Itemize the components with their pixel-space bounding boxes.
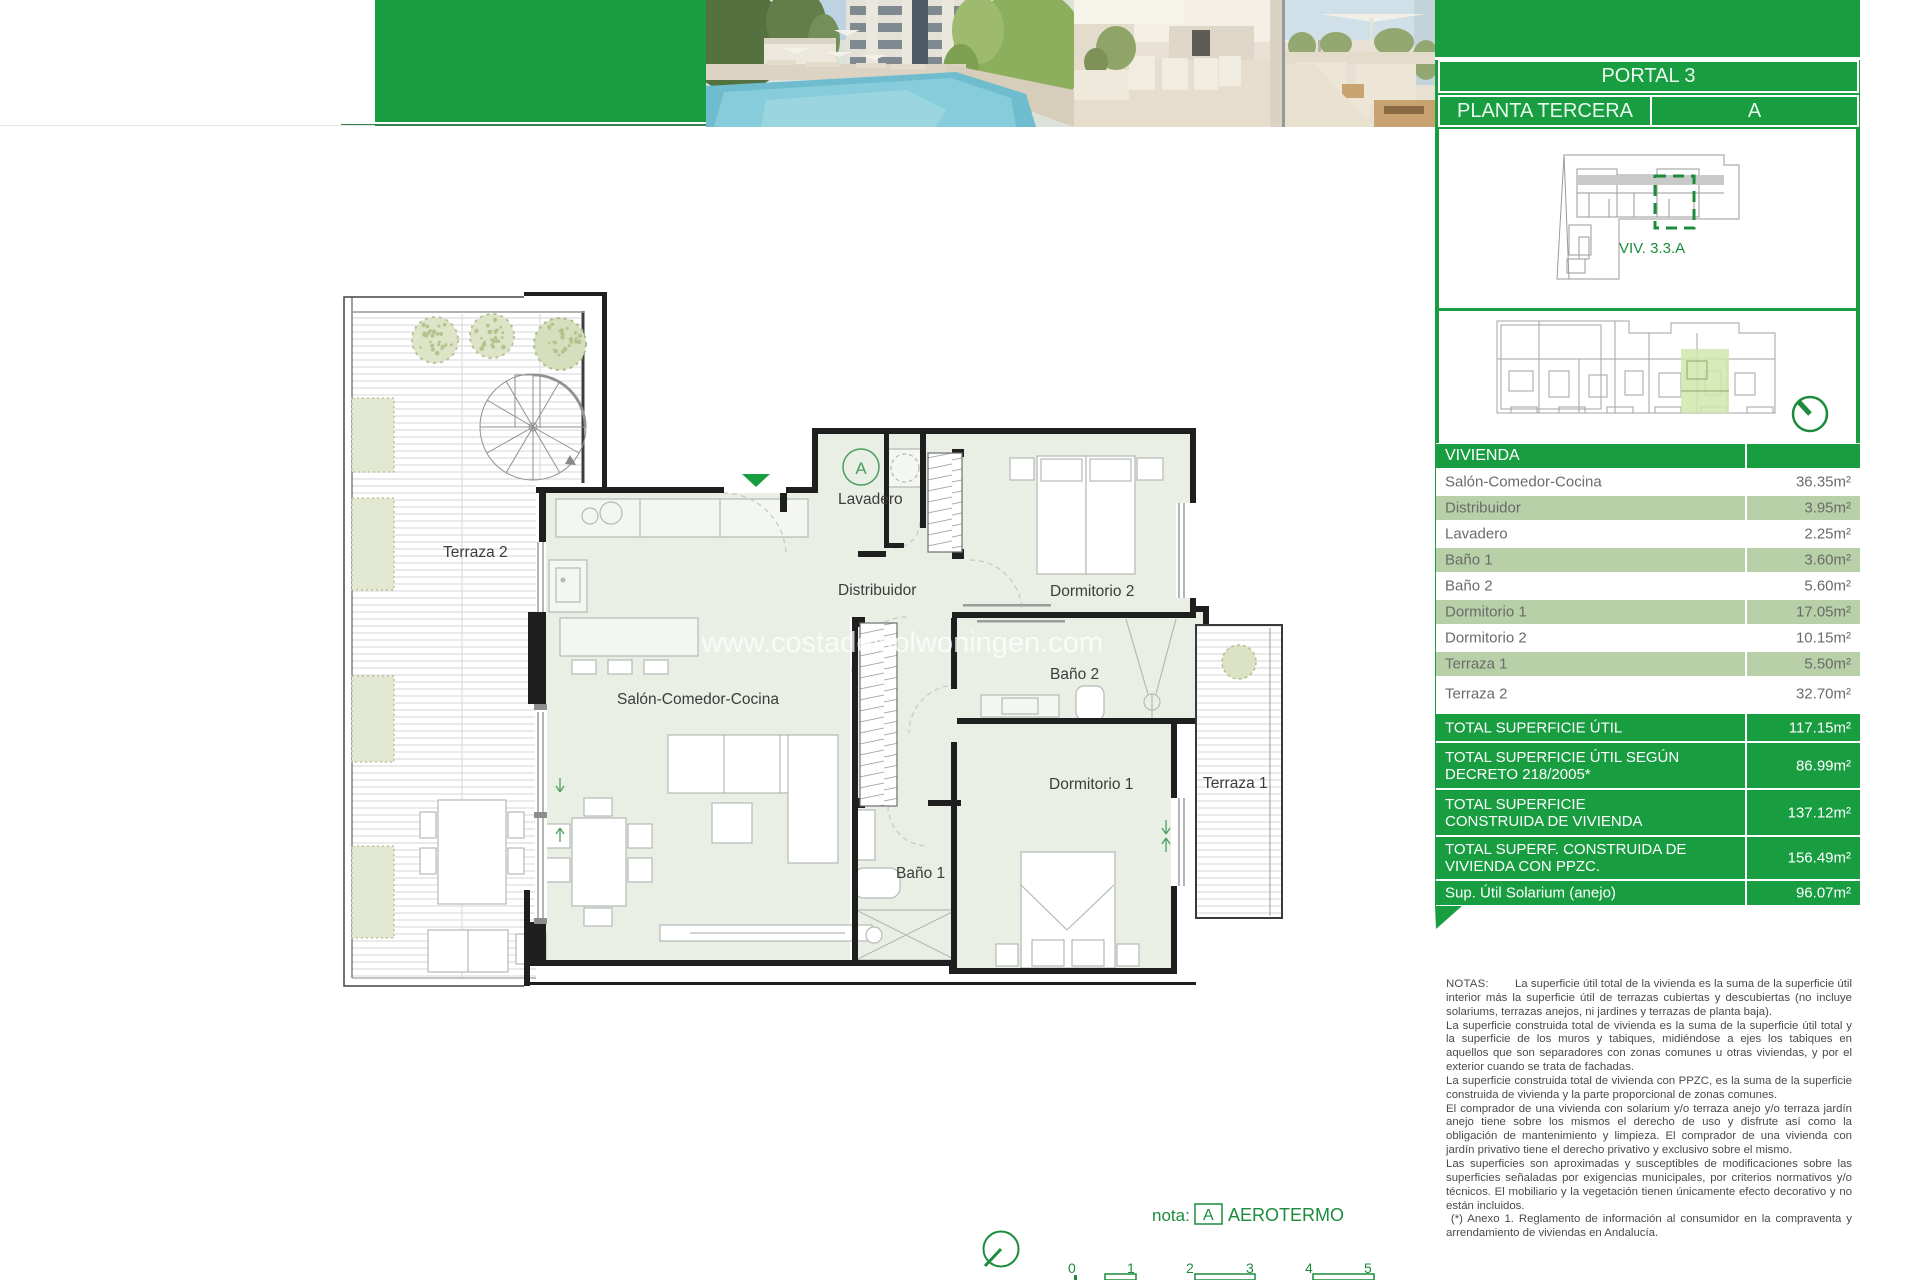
svg-text:0: 0 [1068, 1260, 1076, 1276]
svg-text:A: A [1203, 1207, 1214, 1224]
svg-text:Baño 1: Baño 1 [896, 865, 945, 882]
svg-text:Terraza 1: Terraza 1 [1203, 775, 1268, 792]
svg-text:www.costadelsolwoningen.com: www.costadelsolwoningen.com [701, 627, 1103, 659]
svg-text:Terraza 2: Terraza 2 [443, 544, 508, 561]
svg-text:Distribuidor: Distribuidor [838, 582, 916, 599]
svg-text:4: 4 [1305, 1260, 1313, 1276]
svg-text:Dormitorio 1: Dormitorio 1 [1049, 776, 1133, 793]
svg-text:VIV. 3.3.A: VIV. 3.3.A [1619, 240, 1685, 257]
svg-text:2: 2 [1186, 1260, 1194, 1276]
svg-text:Lavadero: Lavadero [838, 491, 903, 508]
svg-text:nota:: nota: [1152, 1206, 1190, 1225]
svg-text:A: A [855, 459, 867, 478]
svg-text:Dormitorio 2: Dormitorio 2 [1050, 583, 1134, 600]
svg-text:Salón-Comedor-Cocina: Salón-Comedor-Cocina [617, 691, 779, 708]
svg-text:AEROTERMO: AEROTERMO [1228, 1205, 1344, 1225]
svg-text:Baño 2: Baño 2 [1050, 666, 1099, 683]
